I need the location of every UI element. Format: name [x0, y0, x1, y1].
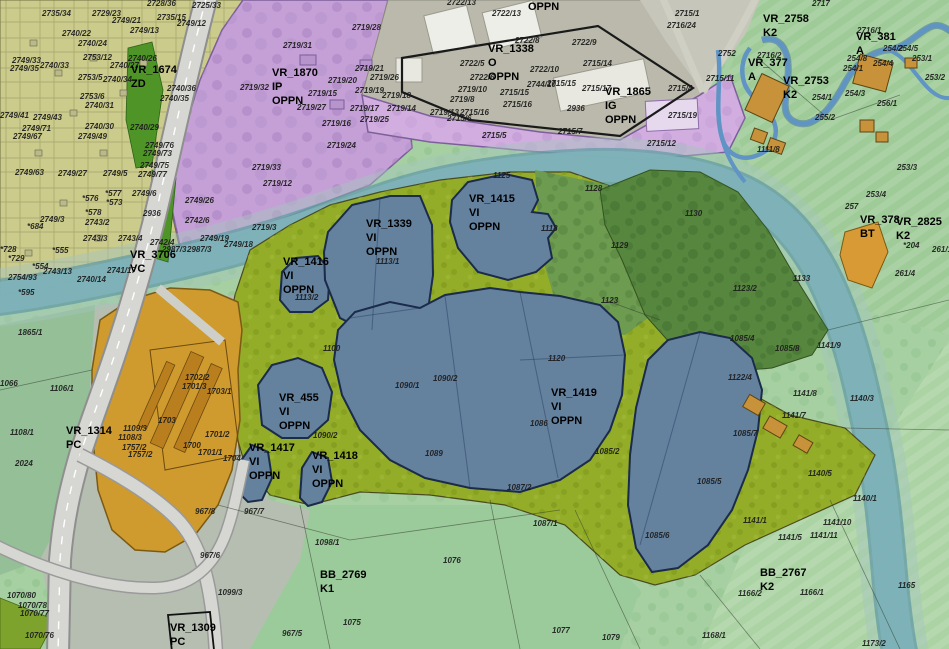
parcel-number: 1123: [601, 296, 619, 305]
parcel-number: 1140/1: [853, 494, 877, 503]
parcel-number: 1090/2: [433, 374, 458, 383]
parcel-number: 2715/12: [646, 139, 676, 148]
parcel-number: 1141/8: [793, 389, 817, 398]
parcel-number: 1130: [685, 209, 703, 218]
parcel-number: 1090/1: [395, 381, 420, 390]
parcel-number: 2722/5: [459, 59, 485, 68]
parcel-number: 2749/41: [0, 111, 29, 120]
parcel-number: 1085/7: [733, 429, 758, 438]
parcel-number: 2753/6: [79, 92, 105, 101]
parcel-number: 2716/24: [666, 21, 696, 30]
parcel-number: 1113/1: [376, 257, 400, 266]
house: [876, 132, 888, 142]
parcel-number: 2719/3: [251, 223, 277, 232]
parcel-number: *573: [106, 198, 123, 207]
parcel-number: 1141/1: [743, 516, 767, 525]
parcel-number: 2715/1: [674, 9, 700, 18]
parcel-number: 2719/15: [307, 89, 337, 98]
parcel-number: 1125: [493, 171, 511, 180]
parcel-number: 2749/49: [77, 132, 107, 141]
parcel-number: 2725/33: [191, 1, 221, 10]
parcel-number: 255/2: [814, 113, 836, 122]
house: [860, 120, 874, 132]
parcel-number: 2740/30: [84, 122, 114, 131]
parcel-number: 2740/36: [166, 84, 196, 93]
parcel-number: 2740/33: [39, 61, 69, 70]
parcel-number: 2753/5: [77, 73, 103, 82]
parcel-number: 2722/13: [491, 9, 521, 18]
parcel-number: 2719/14: [386, 104, 416, 113]
parcel-number: 254/5: [897, 44, 919, 53]
parcel-number: 2749/27: [57, 169, 87, 178]
parcel-number: 2719/28: [351, 23, 381, 32]
parcel-number: 1099/3: [218, 588, 243, 597]
parcel-number: 2740/14: [76, 275, 106, 284]
parcel-number: 2749/6: [131, 189, 157, 198]
parcel-number: 1141/10: [823, 518, 852, 527]
parcel-number: 254/4: [872, 59, 894, 68]
parcel-number: 2715/14: [582, 59, 612, 68]
parcel-number: 253/3: [896, 163, 918, 172]
map-canvas[interactable]: 2728/362725/332735/342729/232749/212735/…: [0, 0, 949, 649]
parcel-number: 2749/67: [12, 132, 42, 141]
parcel-number: 2740/35: [159, 94, 189, 103]
parcel-number: 1085/4: [730, 334, 755, 343]
parcel-number: 2715/6: [446, 114, 472, 123]
parcel-number: 1100: [323, 344, 341, 353]
parcel-number: 2749/63: [14, 168, 44, 177]
parcel-number: 257: [844, 202, 859, 211]
parcel-number: 253/1: [911, 54, 933, 63]
parcel-number: 1089: [425, 449, 443, 458]
zoning-map-svg: 2728/362725/332735/342729/232749/212735/…: [0, 0, 949, 649]
parcel-number: 967/5: [282, 629, 303, 638]
parcel-number: 1701/2: [205, 430, 230, 439]
parcel-number: 2719/21: [354, 64, 384, 73]
parcel-number: *555: [52, 246, 69, 255]
parcel-number: 2743/2: [84, 218, 110, 227]
parcel-number: 2717: [811, 0, 830, 8]
parcel-number: 1701/3: [182, 382, 207, 391]
parcel-number: 2749/18: [223, 240, 253, 249]
parcel-number: 967/7: [244, 507, 265, 516]
parcel-number: 2722/9: [571, 38, 597, 47]
parcel-number: 1166/2: [738, 589, 762, 598]
parcel-number: 1085/8: [775, 344, 800, 353]
parcel-number: 1077: [552, 626, 570, 635]
parcel-number: 2719/8: [449, 95, 475, 104]
parcel-number: 1757/2: [128, 450, 153, 459]
parcel-number: 1070/80: [7, 591, 36, 600]
parcel-number: 1090/2: [313, 431, 338, 440]
parcel-number: 2719/32: [239, 83, 269, 92]
purple-zone-building: [300, 55, 316, 65]
parcel-number: 1123/2: [733, 284, 757, 293]
parcel-number: 254/1: [811, 93, 833, 102]
parcel-number: 2742/6: [184, 216, 210, 225]
parcel-number: 2936: [142, 209, 161, 218]
parcel-number: 2719/16: [321, 119, 351, 128]
parcel-number: 1173/2: [862, 639, 886, 648]
parcel-number: 2936: [566, 104, 585, 113]
parcel-number: 1085/5: [697, 477, 722, 486]
parcel-number: 1141/9: [817, 341, 841, 350]
parcel-number: 1075: [343, 618, 361, 627]
parcel-number: *728: [0, 245, 17, 254]
parcel-number: 1133: [793, 274, 811, 283]
parcel-number: 1079: [602, 633, 620, 642]
parcel-number: 1076: [443, 556, 461, 565]
parcel-number: 2749/5: [102, 169, 128, 178]
parcel-number: 1168/1: [702, 631, 726, 640]
parcel-number: 1120: [548, 354, 566, 363]
parcel-number: 2740/24: [77, 39, 107, 48]
parcel-number: 1129: [611, 241, 629, 250]
parcel-number: 2735/34: [41, 9, 71, 18]
parcel-number: 2740/29: [129, 123, 159, 132]
parcel-number: *684: [27, 222, 44, 231]
parcel-number: 1111/8: [757, 145, 780, 154]
parcel-number: 2752: [717, 49, 736, 58]
parcel-number: 1066: [0, 379, 18, 388]
parcel-number: 2719/24: [326, 141, 356, 150]
parcel-number: 1106/1: [50, 384, 74, 393]
parcel-number: 2719/12: [262, 179, 292, 188]
parcel-number: 1704: [223, 454, 241, 463]
parcel-number: 1140/5: [808, 469, 832, 478]
parcel-number: 1702/2: [185, 373, 210, 382]
parcel-number: 1109/3: [123, 424, 147, 433]
parcel-number: 1703: [158, 416, 176, 425]
parcel-number: 1070/76: [25, 631, 54, 640]
parcel-number: 2743/3: [82, 234, 108, 243]
parcel-number: 2749/35: [9, 64, 39, 73]
parcel-number: 1865/1: [18, 328, 43, 337]
parcel-number: 2024: [14, 459, 33, 468]
industrial-building: [396, 58, 422, 82]
parcel-number: 2722/13: [446, 0, 476, 7]
parcel-number: 2749/13: [129, 26, 159, 35]
parcel-number: 2715/4: [667, 84, 693, 93]
parcel-number: 2719/10: [457, 85, 487, 94]
parcel-number: 2753/12: [82, 53, 112, 62]
parcel-number: *595: [18, 288, 35, 297]
parcel-number: 261/4: [894, 269, 916, 278]
parcel-number: 1087/1: [533, 519, 558, 528]
parcel-number: 2743/4: [117, 234, 143, 243]
parcel-number: 1086: [530, 419, 548, 428]
zone-code-label: OPPN: [528, 1, 559, 13]
parcel-number: *204: [903, 241, 920, 250]
parcel-number: 1108/1: [10, 428, 34, 437]
parcel-number: 1166/1: [800, 588, 824, 597]
parcel-number: 1070/77: [20, 609, 49, 618]
parcel-number: 1165: [898, 581, 916, 590]
parcel-number: 2722/10: [529, 65, 559, 74]
parcel-number: 967/6: [200, 551, 221, 560]
parcel-number: 2740/22: [61, 29, 91, 38]
parcel-number: 1098/1: [315, 538, 340, 547]
parcel-number: *576: [82, 194, 99, 203]
parcel-number: 1141/11: [810, 531, 838, 540]
parcel-number: 253/2: [924, 73, 946, 82]
parcel-number: 1701/1: [198, 448, 223, 457]
parcel-number: 2728/36: [146, 0, 176, 8]
parcel-number: 2719/33: [251, 163, 281, 172]
parcel-number: 2715/15: [499, 88, 529, 97]
parcel-number: 254/1: [842, 64, 864, 73]
parcel-number: 967/8: [195, 507, 216, 516]
parcel-number: 2749/21: [111, 16, 141, 25]
parcel-number: 2715/5: [481, 131, 507, 140]
parcel-number: 254/3: [844, 89, 866, 98]
parcel-number: 1118: [541, 224, 558, 233]
parcel-number: 1085/6: [645, 531, 670, 540]
parcel-number: 2987/3: [186, 245, 212, 254]
parcel-number: 2715/16: [502, 100, 532, 109]
parcel-number: 2715/11: [705, 74, 735, 83]
parcel-number: 1140/3: [850, 394, 874, 403]
parcel-number: 2719/25: [359, 115, 389, 124]
parcel-number: 2749/26: [184, 196, 214, 205]
parcel-number: 1141/5: [778, 533, 802, 542]
parcel-number: 2749/43: [32, 113, 62, 122]
parcel-number: 2740/31: [84, 101, 114, 110]
parcel-number: 253/4: [865, 190, 887, 199]
parcel-number: 2749/77: [137, 170, 167, 179]
parcel-number: 1141/7: [782, 411, 806, 420]
parcel-number: *578: [85, 208, 102, 217]
parcel-number: 2744/10: [526, 80, 556, 89]
parcel-number: 2719/18: [381, 91, 411, 100]
parcel-number: 2743/13: [42, 267, 72, 276]
parcel-number: 2749/12: [176, 19, 206, 28]
parcel-number: 1703/1: [207, 387, 232, 396]
parcel-number: 2719/19: [354, 86, 384, 95]
parcel-number: 2749/73: [142, 149, 172, 158]
parcel-number: 1087/2: [507, 483, 532, 492]
parcel-number: *729: [8, 254, 25, 263]
parcel-number: 2740/34: [102, 75, 132, 84]
parcel-number: 1122/4: [728, 373, 752, 382]
parcel-number: 256/1: [876, 99, 898, 108]
parcel-number: 1128: [585, 184, 603, 193]
parcel-number: 2719/20: [327, 76, 357, 85]
parcel-number: *577: [105, 189, 122, 198]
purple-zone-building: [330, 100, 344, 109]
parcel-number: 1085/2: [595, 447, 620, 456]
parcel-number: 2715/19: [667, 111, 697, 120]
parcel-number: 2754/93: [7, 273, 37, 282]
parcel-number: 2715/7: [557, 127, 583, 136]
parcel-number: 2749/75: [139, 161, 169, 170]
parcel-number: 2719/26: [369, 73, 399, 82]
parcel-number: 2719/31: [282, 41, 312, 50]
parcel-number: 2719/17: [349, 104, 379, 113]
parcel-number: 261/1: [931, 245, 949, 254]
parcel-number: 1108/3: [118, 433, 142, 442]
